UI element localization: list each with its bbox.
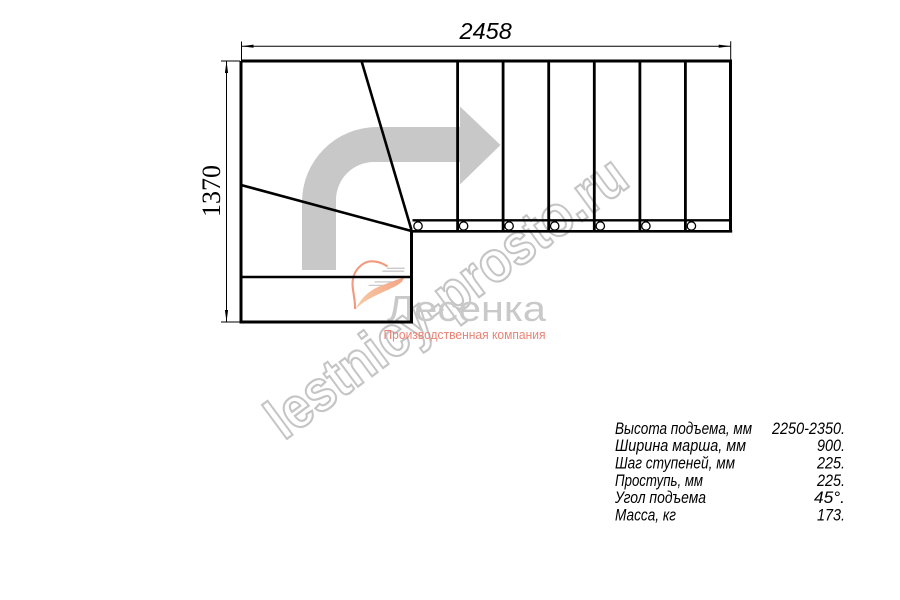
svg-text:173.: 173.: [817, 506, 845, 525]
svg-text:Угол подъема: Угол подъема: [614, 488, 706, 507]
svg-text:Ширина марша, мм: Ширина марша, мм: [615, 436, 746, 455]
svg-text:2458: 2458: [459, 18, 512, 44]
svg-text:1370: 1370: [196, 165, 226, 217]
svg-text:Производственная компания: Производственная компания: [384, 328, 546, 342]
svg-text:900.: 900.: [817, 436, 845, 455]
svg-text:225.: 225.: [816, 454, 845, 473]
svg-text:225.: 225.: [816, 471, 845, 490]
svg-text:45°.: 45°.: [814, 488, 845, 507]
svg-text:Проступь, мм: Проступь, мм: [615, 471, 703, 490]
svg-text:Высота подъема, мм: Высота подъема, мм: [615, 419, 752, 438]
svg-text:Масса, кг: Масса, кг: [615, 506, 676, 525]
svg-text:2250-2350.: 2250-2350.: [771, 419, 845, 438]
svg-text:Шаг ступеней, мм: Шаг ступеней, мм: [615, 454, 735, 473]
